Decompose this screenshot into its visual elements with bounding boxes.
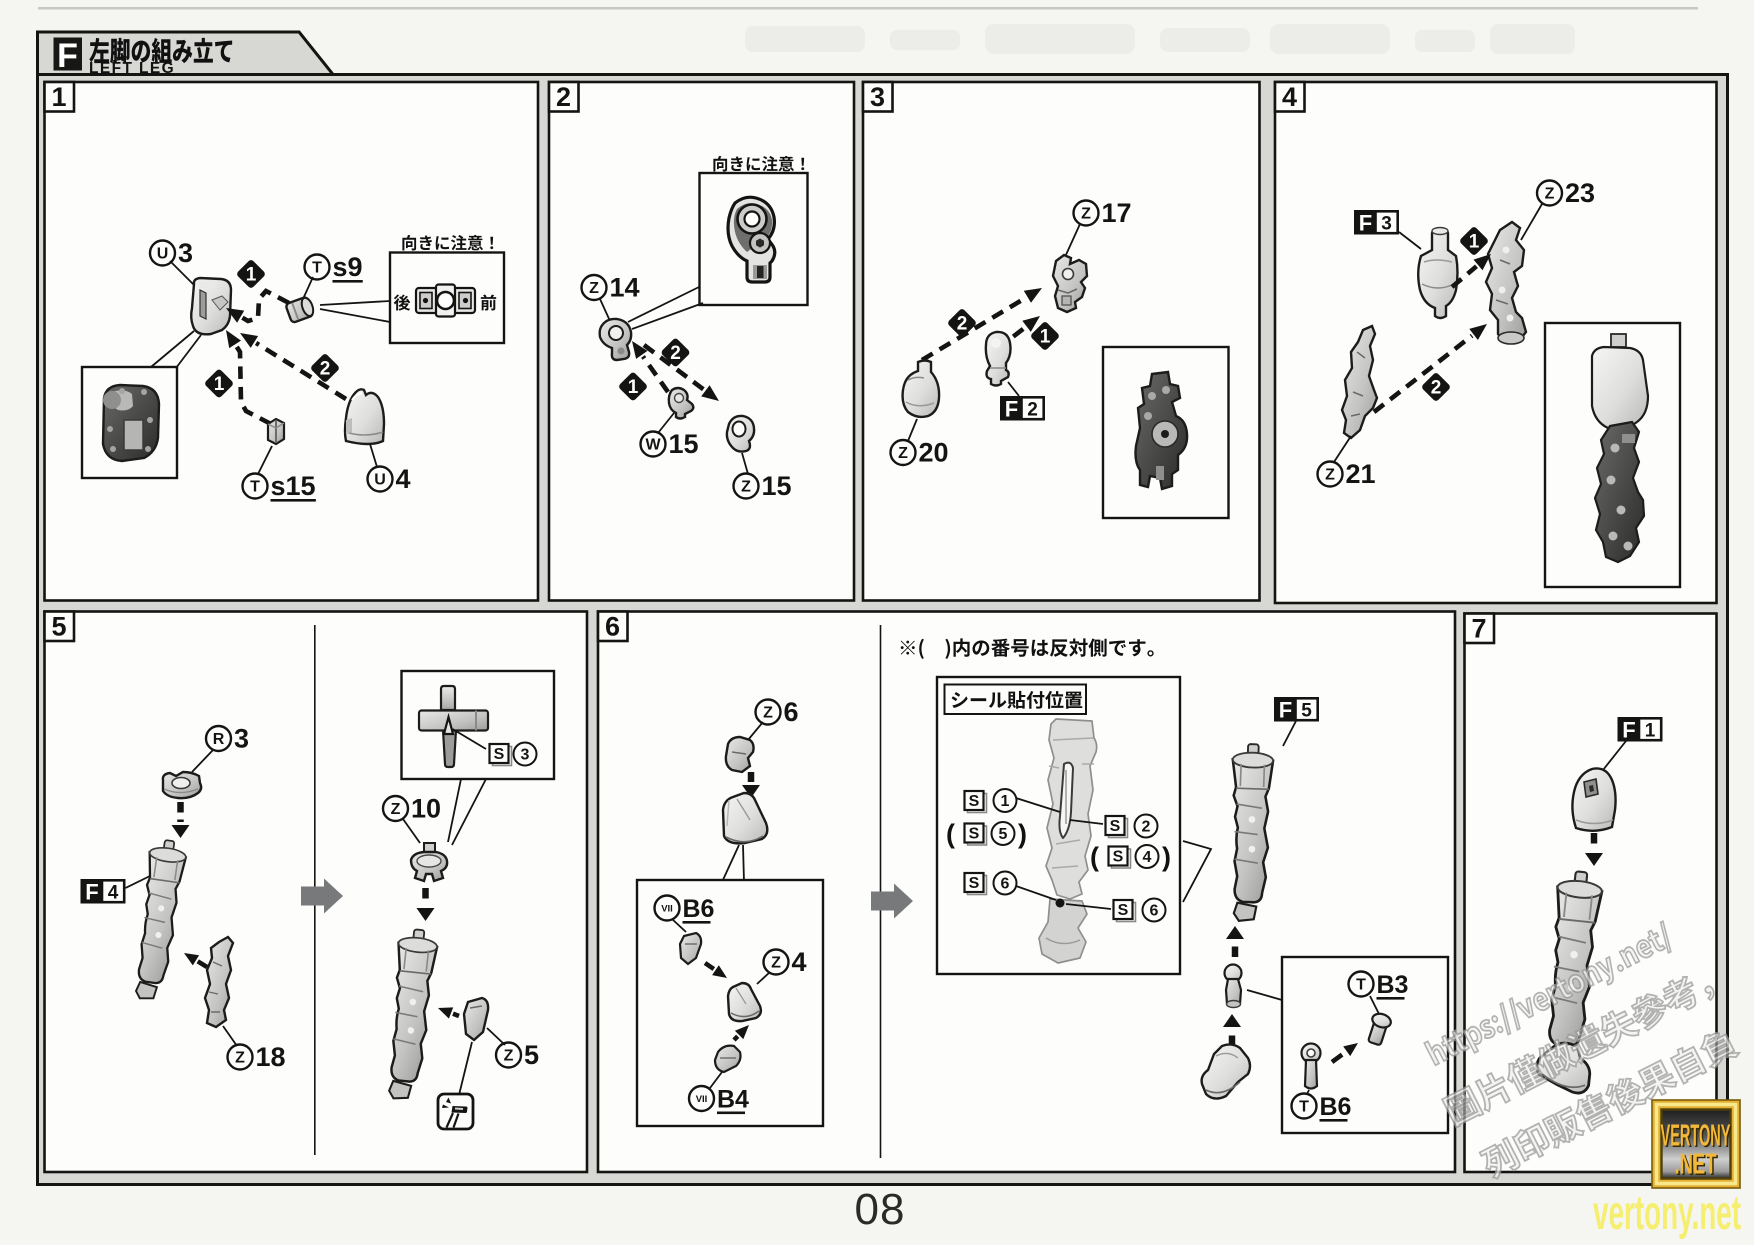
svg-text:6: 6 (1150, 903, 1159, 920)
svg-text:4: 4 (396, 464, 411, 494)
svg-text:3: 3 (1381, 214, 1392, 235)
svg-text:Z: Z (235, 1050, 245, 1067)
svg-text:): ) (1018, 819, 1027, 849)
svg-text:T: T (312, 260, 322, 277)
svg-text:B6: B6 (683, 895, 715, 923)
svg-text:Z: Z (391, 801, 401, 818)
svg-text:F: F (85, 880, 98, 905)
svg-text:14: 14 (610, 273, 640, 303)
svg-text:3: 3 (234, 724, 249, 754)
svg-text:6: 6 (1001, 876, 1010, 893)
svg-text:B4: B4 (717, 1086, 749, 1114)
svg-text:Z: Z (1081, 206, 1091, 223)
svg-text:s15: s15 (271, 471, 316, 501)
svg-text:Z: Z (504, 1048, 514, 1065)
svg-text:4: 4 (1143, 849, 1152, 866)
svg-text:vertony.net: vertony.net (1593, 1187, 1741, 1240)
svg-text:(: ( (1090, 842, 1099, 872)
svg-text:21: 21 (1346, 459, 1376, 489)
svg-text:6: 6 (784, 697, 799, 727)
svg-text:2: 2 (957, 314, 968, 335)
svg-text:1: 1 (51, 82, 66, 112)
svg-text:U: U (374, 472, 386, 489)
svg-text:R: R (213, 731, 225, 748)
svg-text:S: S (969, 826, 980, 843)
svg-text:4: 4 (108, 883, 119, 904)
svg-text:F: F (57, 37, 78, 75)
svg-text:B6: B6 (1320, 1093, 1352, 1121)
svg-text:1: 1 (214, 374, 225, 395)
svg-text:08: 08 (855, 1185, 906, 1234)
svg-text:20: 20 (919, 438, 949, 468)
svg-text:5: 5 (51, 612, 66, 642)
svg-text:(: ( (946, 819, 955, 849)
svg-text:S: S (969, 875, 980, 892)
svg-text:T: T (1299, 1099, 1309, 1116)
svg-text:VERTONY: VERTONY (1661, 1118, 1731, 1153)
svg-text:3: 3 (521, 747, 530, 764)
svg-text:S: S (1113, 849, 1124, 866)
svg-text:1: 1 (1040, 327, 1051, 348)
svg-text:1: 1 (246, 265, 257, 286)
svg-text:W: W (645, 437, 661, 454)
svg-text:S: S (1118, 902, 1129, 919)
svg-text:6: 6 (605, 612, 620, 642)
svg-text:2: 2 (556, 82, 571, 112)
svg-text:Z: Z (763, 705, 773, 722)
svg-text:3: 3 (870, 82, 885, 112)
svg-text:Z: Z (741, 479, 751, 496)
svg-text:1: 1 (1645, 721, 1656, 742)
svg-text:B3: B3 (1377, 971, 1409, 999)
svg-text:.NET: .NET (1675, 1149, 1717, 1181)
svg-text:S: S (1110, 818, 1121, 835)
svg-text:F: F (1005, 397, 1018, 422)
svg-text:23: 23 (1565, 178, 1595, 208)
svg-text:T: T (250, 479, 260, 496)
svg-text:18: 18 (256, 1042, 286, 1072)
svg-text:1: 1 (1001, 793, 1010, 810)
svg-text:F: F (1622, 718, 1635, 743)
svg-text:S: S (494, 746, 505, 763)
svg-text:2: 2 (1142, 819, 1151, 836)
svg-text:Z: Z (589, 280, 599, 297)
svg-text:1: 1 (628, 377, 639, 398)
svg-text:LEFT LEG: LEFT LEG (89, 60, 175, 77)
svg-text:VII: VII (661, 904, 673, 915)
svg-text:): ) (1162, 842, 1171, 872)
svg-text:4: 4 (792, 947, 807, 977)
svg-text:T: T (1356, 977, 1366, 994)
svg-text:10: 10 (411, 794, 441, 824)
svg-text:2: 2 (1027, 400, 1038, 421)
svg-text:Z: Z (1325, 467, 1335, 484)
svg-text:15: 15 (669, 429, 699, 459)
svg-text:2: 2 (1431, 378, 1442, 399)
svg-text:Z: Z (898, 445, 908, 462)
svg-text:U: U (157, 246, 169, 263)
svg-text:3: 3 (178, 238, 193, 268)
svg-text:Z: Z (1545, 186, 1555, 203)
svg-text:5: 5 (1301, 701, 1312, 722)
svg-text:VII: VII (696, 1094, 708, 1105)
svg-text:15: 15 (762, 471, 792, 501)
svg-text:F: F (1279, 698, 1292, 723)
svg-text:4: 4 (1282, 82, 1297, 112)
svg-text:2: 2 (320, 359, 331, 380)
svg-text:s9: s9 (333, 252, 363, 282)
svg-text:S: S (969, 793, 980, 810)
svg-text:2: 2 (670, 343, 681, 364)
svg-text:17: 17 (1102, 198, 1132, 228)
svg-text:Z: Z (771, 955, 781, 972)
svg-text:7: 7 (1471, 614, 1486, 644)
svg-text:F: F (1359, 211, 1372, 236)
svg-text:1: 1 (1469, 232, 1480, 253)
svg-text:5: 5 (999, 826, 1008, 843)
svg-text:5: 5 (524, 1040, 539, 1070)
